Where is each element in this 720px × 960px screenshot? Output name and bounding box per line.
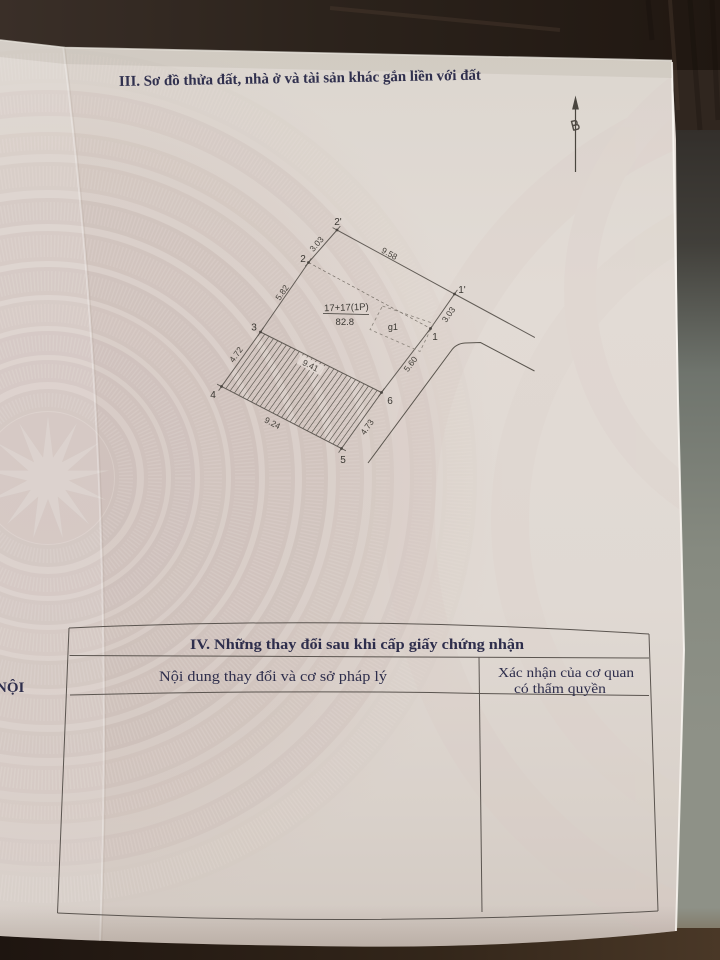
svg-text:NỘI: NỘI <box>0 679 25 696</box>
svg-text:2: 2 <box>300 254 306 265</box>
svg-text:6: 6 <box>387 396 393 407</box>
svg-text:2': 2' <box>334 217 342 228</box>
svg-text:Nội dung thay đổi và cơ sở phá: Nội dung thay đổi và cơ sở pháp lý <box>159 669 388 685</box>
svg-text:1: 1 <box>432 332 438 343</box>
svg-text:5: 5 <box>340 455 346 466</box>
svg-text:IV. Những thay đổi sau khi cấp: IV. Những thay đổi sau khi cấp giấy chứn… <box>190 637 525 653</box>
svg-text:1': 1' <box>458 285 466 296</box>
svg-text:4: 4 <box>210 390 216 401</box>
svg-text:có thẩm quyền: có thẩm quyền <box>514 682 606 697</box>
svg-text:17+17(1P): 17+17(1P) <box>324 302 369 315</box>
svg-text:82.8: 82.8 <box>336 317 355 328</box>
svg-text:g1: g1 <box>388 322 398 332</box>
svg-text:Xác nhận của cơ quan: Xác nhận của cơ quan <box>498 666 634 681</box>
svg-text:3: 3 <box>251 323 257 334</box>
